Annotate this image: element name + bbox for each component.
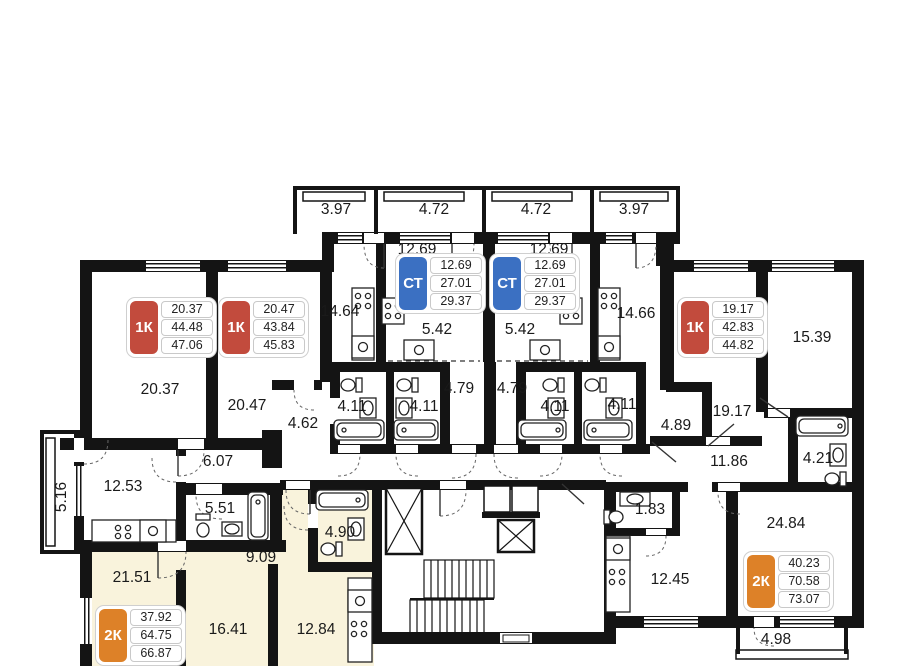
total-area-value: 29.37 — [430, 293, 482, 310]
area-value: 27.01 — [524, 275, 576, 292]
floorplan-canvas: 3.974.724.723.9712.6912.6914.6414.6620.3… — [0, 0, 900, 666]
apartment-badge-2k-b: 2К 40.23 70.58 73.07 — [743, 551, 834, 612]
apartment-type-chip: 1К — [130, 301, 158, 354]
living-area-value: 19.17 — [712, 301, 764, 318]
area-value: 70.58 — [778, 573, 830, 590]
apartment-badge-1k-b: 1К 20.47 43.84 45.83 — [218, 297, 309, 358]
apartment-badge-studio-b: СТ 12.69 27.01 29.37 — [489, 253, 580, 314]
apartment-badge-1k-a: 1К 20.37 44.48 47.06 — [126, 297, 217, 358]
total-area-value: 66.87 — [130, 645, 182, 662]
area-value: 64.75 — [130, 627, 182, 644]
area-value: 43.84 — [253, 319, 305, 336]
apartment-badge-2k-a: 2К 37.92 64.75 66.87 — [95, 605, 186, 666]
total-area-value: 45.83 — [253, 337, 305, 354]
apartment-type-chip: 2К — [747, 555, 775, 608]
area-value: 44.48 — [161, 319, 213, 336]
living-area-value: 37.92 — [130, 609, 182, 626]
apartment-type-chip: 2К — [99, 609, 127, 662]
living-area-value: 12.69 — [430, 257, 482, 274]
apartment-type-chip: СТ — [493, 257, 521, 310]
apartment-type-chip: СТ — [399, 257, 427, 310]
total-area-value: 29.37 — [524, 293, 576, 310]
living-area-value: 20.37 — [161, 301, 213, 318]
living-area-value: 40.23 — [778, 555, 830, 572]
total-area-value: 47.06 — [161, 337, 213, 354]
apartment-badge-1k-c: 1К 19.17 42.83 44.82 — [677, 297, 768, 358]
apartment-type-chip: 1К — [681, 301, 709, 354]
stairs-icon — [410, 560, 529, 642]
area-value: 27.01 — [430, 275, 482, 292]
apartment-type-chip: 1К — [222, 301, 250, 354]
living-area-value: 12.69 — [524, 257, 576, 274]
total-area-value: 44.82 — [712, 337, 764, 354]
elevator-icon — [386, 486, 540, 554]
total-area-value: 73.07 — [778, 591, 830, 608]
apartment-badge-studio-a: СТ 12.69 27.01 29.37 — [395, 253, 486, 314]
area-value: 42.83 — [712, 319, 764, 336]
living-area-value: 20.47 — [253, 301, 305, 318]
